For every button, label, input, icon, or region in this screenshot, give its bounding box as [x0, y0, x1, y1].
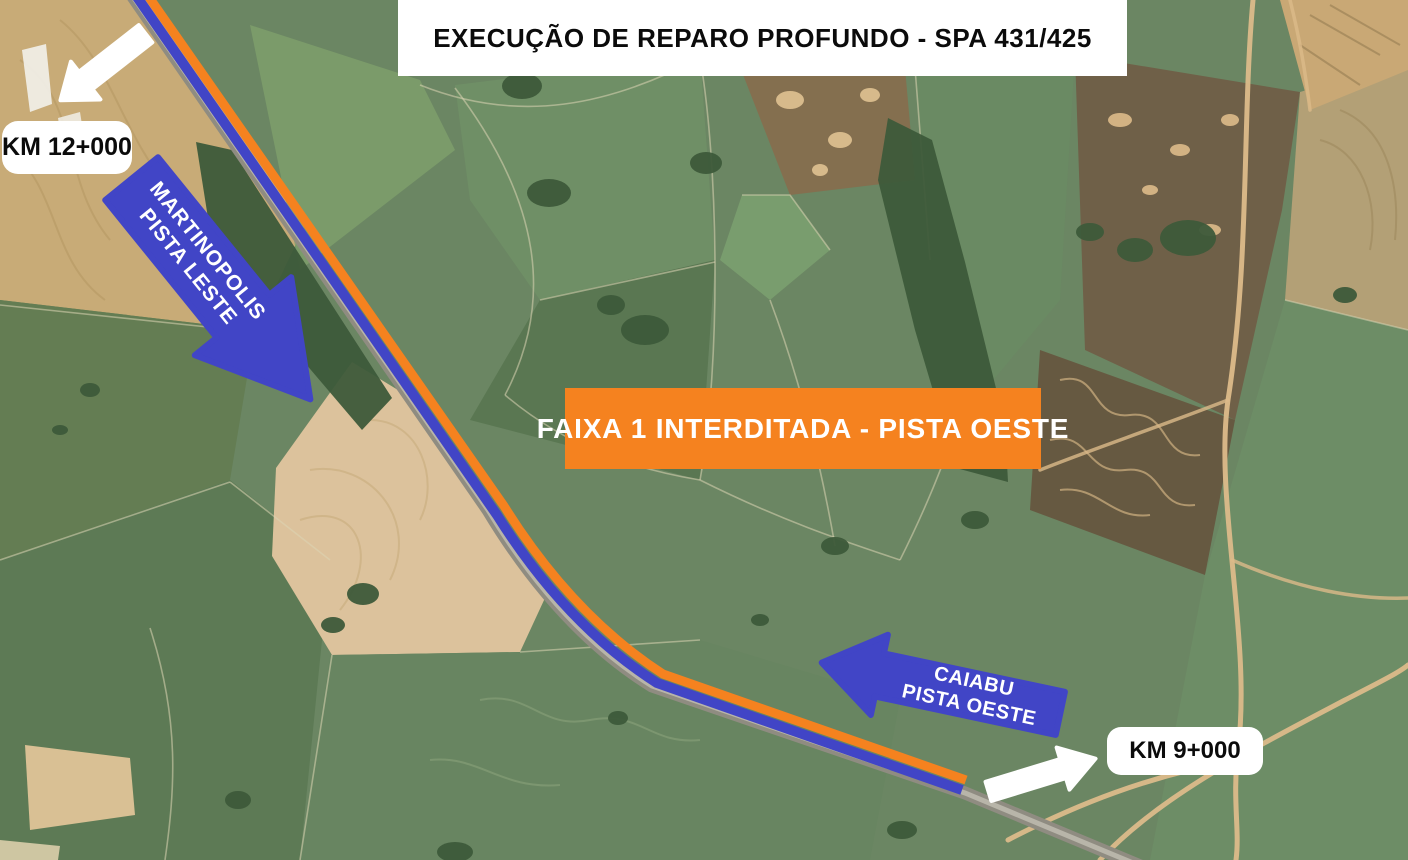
title-banner: EXECUÇÃO DE REPARO PROFUNDO - SPA 431/42… — [398, 0, 1127, 76]
closure-banner-label: FAIXA 1 INTERDITADA - PISTA OESTE — [537, 413, 1070, 445]
km-12-label: KM 12+000 — [2, 133, 132, 162]
km-12-marker: KM 12+000 — [2, 121, 132, 174]
closure-banner: FAIXA 1 INTERDITADA - PISTA OESTE — [565, 388, 1041, 469]
km-9-label: KM 9+000 — [1129, 737, 1240, 765]
map-canvas: EXECUÇÃO DE REPARO PROFUNDO - SPA 431/42… — [0, 0, 1408, 860]
km-9-marker: KM 9+000 — [1107, 727, 1263, 775]
page-title: EXECUÇÃO DE REPARO PROFUNDO - SPA 431/42… — [433, 23, 1092, 54]
